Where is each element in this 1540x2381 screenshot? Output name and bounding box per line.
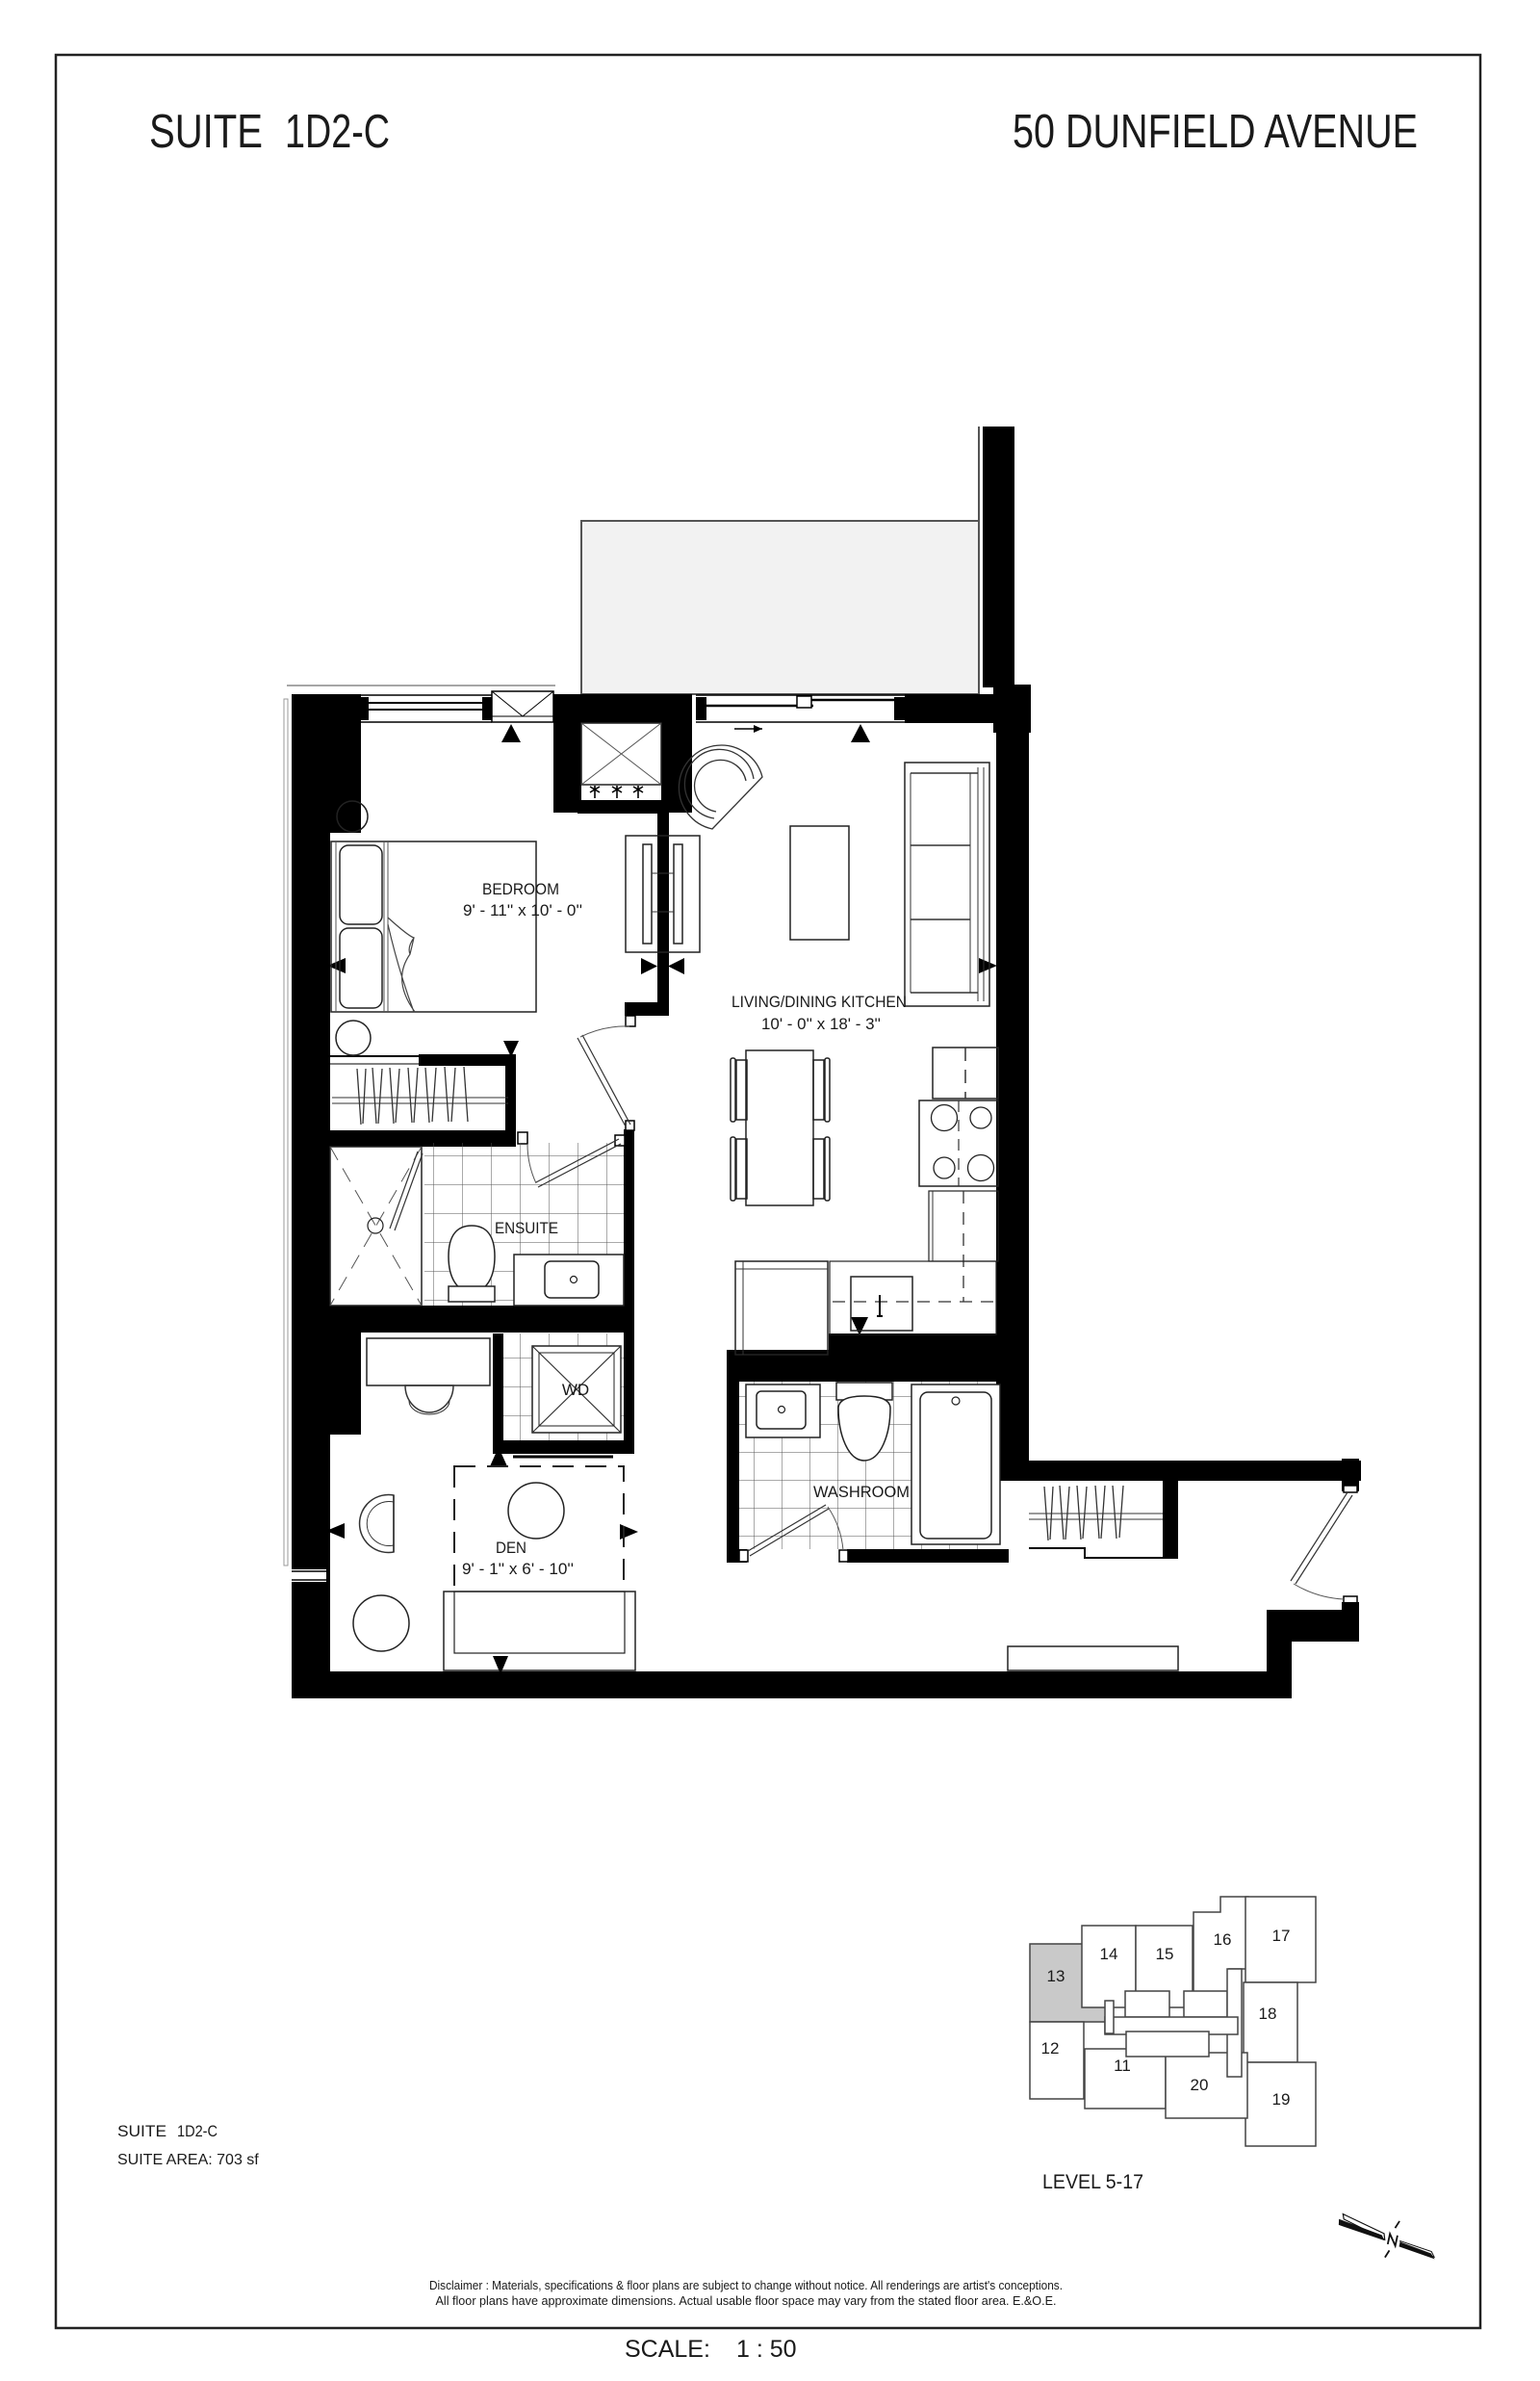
svg-text:19: 19 [1272, 2090, 1291, 2109]
svg-text:1 : 50: 1 : 50 [736, 2336, 797, 2363]
svg-text:LEVEL 5-17: LEVEL 5-17 [1042, 2171, 1143, 2193]
svg-text:15: 15 [1156, 1945, 1174, 1963]
svg-text:SUITE AREA: 703 sf: SUITE AREA: 703 sf [117, 2152, 259, 2168]
svg-text:Disclaimer : Materials, specif: Disclaimer : Materials, specifications &… [429, 2278, 1063, 2292]
svg-text:14: 14 [1100, 1945, 1118, 1963]
svg-text:ENSUITE: ENSUITE [495, 1219, 558, 1237]
svg-text:10' - 0'' x 18' - 3'': 10' - 0'' x 18' - 3'' [761, 1015, 881, 1033]
svg-text:SCALE:: SCALE: [625, 2336, 710, 2363]
svg-text:17: 17 [1272, 1927, 1291, 1945]
svg-text:13: 13 [1047, 1967, 1065, 1985]
svg-text:9' - 11'' x 10' - 0'': 9' - 11'' x 10' - 0'' [463, 901, 582, 919]
svg-text:WD: WD [562, 1381, 589, 1399]
svg-text:9' - 1'' x 6' - 10'': 9' - 1'' x 6' - 10'' [462, 1560, 574, 1578]
svg-text:18: 18 [1259, 2005, 1277, 2023]
svg-text:SUITE: SUITE [149, 106, 263, 158]
svg-text:LIVING/DINING KITCHEN: LIVING/DINING KITCHEN [731, 993, 907, 1011]
svg-text:All floor plans have approxima: All floor plans have approximate dimensi… [436, 2293, 1057, 2308]
svg-text:12: 12 [1041, 2039, 1060, 2057]
svg-text:16: 16 [1214, 1930, 1232, 1949]
svg-text:SUITE: SUITE [117, 2122, 167, 2140]
svg-text:50 DUNFIELD AVENUE: 50 DUNFIELD AVENUE [1013, 106, 1418, 158]
svg-text:1D2-C: 1D2-C [285, 106, 390, 158]
svg-text:WASHROOM: WASHROOM [813, 1483, 910, 1501]
svg-text:11: 11 [1114, 2057, 1131, 2075]
svg-text:BEDROOM: BEDROOM [482, 880, 559, 898]
svg-text:20: 20 [1191, 2076, 1209, 2094]
svg-text:DEN: DEN [496, 1539, 526, 1557]
svg-text:1D2-C: 1D2-C [177, 2122, 218, 2140]
